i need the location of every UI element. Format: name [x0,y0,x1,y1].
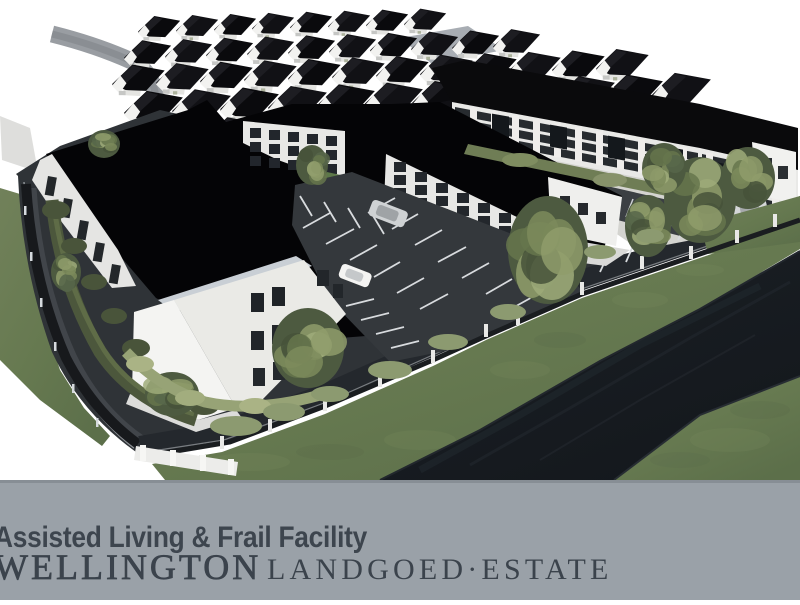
svg-text:LANDGOED·ESTATE: LANDGOED·ESTATE [267,553,613,586]
svg-text:WELLINGTON: WELLINGTON [0,547,261,587]
